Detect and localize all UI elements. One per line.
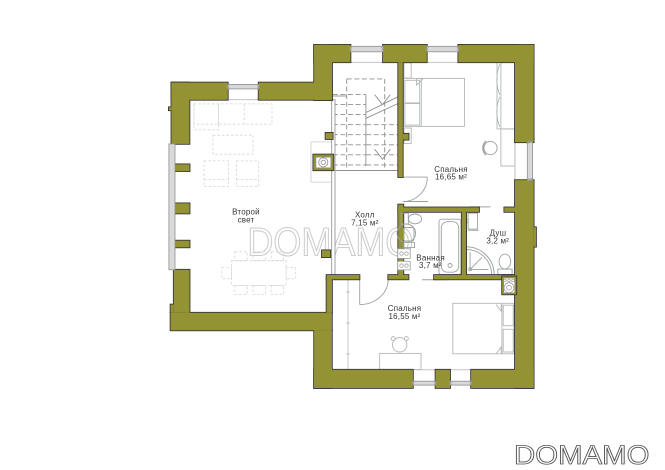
svg-text:3,2 м²: 3,2 м² [486, 237, 509, 246]
svg-text:7,15 м²: 7,15 м² [351, 218, 378, 227]
svg-text:16,55 м²: 16,55 м² [388, 312, 420, 321]
svg-text:3,7 м²: 3,7 м² [419, 261, 442, 270]
svg-text:16,65 м²: 16,65 м² [435, 172, 467, 181]
svg-text:свет: свет [238, 215, 255, 224]
svg-text:DOMAMO: DOMAMO [514, 440, 650, 470]
